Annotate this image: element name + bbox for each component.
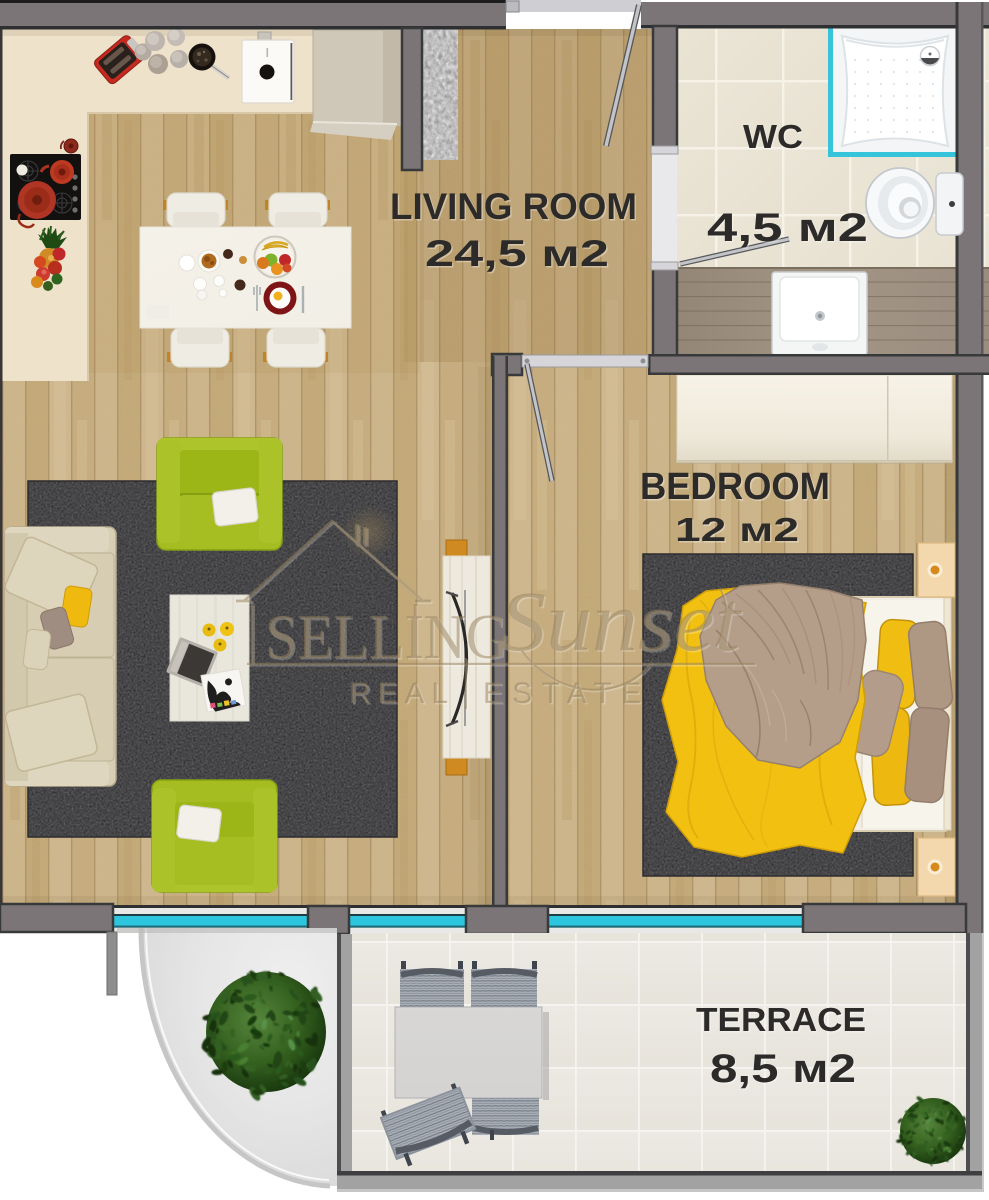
- svg-text:BEDROOM: BEDROOM: [640, 466, 830, 508]
- svg-text:24,5 м2: 24,5 м2: [425, 233, 609, 274]
- svg-text:4,5 м2: 4,5 м2: [707, 206, 868, 250]
- svg-text:SELLING: SELLING: [265, 602, 508, 672]
- svg-text:8,5 м2: 8,5 м2: [710, 1047, 856, 1091]
- svg-text:WC: WC: [743, 118, 803, 155]
- svg-text:Sunset: Sunset: [500, 573, 742, 669]
- svg-text:TERRACE: TERRACE: [696, 1001, 866, 1038]
- svg-text:12 м2: 12 м2: [675, 511, 799, 548]
- svg-text:LIVING ROOM: LIVING ROOM: [390, 186, 637, 227]
